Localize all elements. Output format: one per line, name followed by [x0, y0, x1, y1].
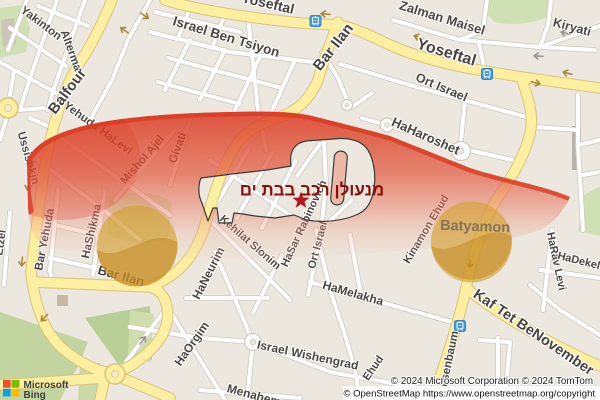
svg-text:מנעולן רכב בבת ים: מנעולן רכב בבת ים: [240, 181, 385, 200]
svg-text:Batyamon: Batyamon: [440, 218, 511, 236]
svg-text:Bing: Bing: [24, 390, 46, 400]
svg-text:© 2024 Microsoft Corporation ©: © 2024 Microsoft Corporation © 2024 TomT…: [391, 376, 593, 387]
svg-text:© OpenStreetMap https://www.op: © OpenStreetMap https://www.openstreetma…: [344, 389, 596, 400]
